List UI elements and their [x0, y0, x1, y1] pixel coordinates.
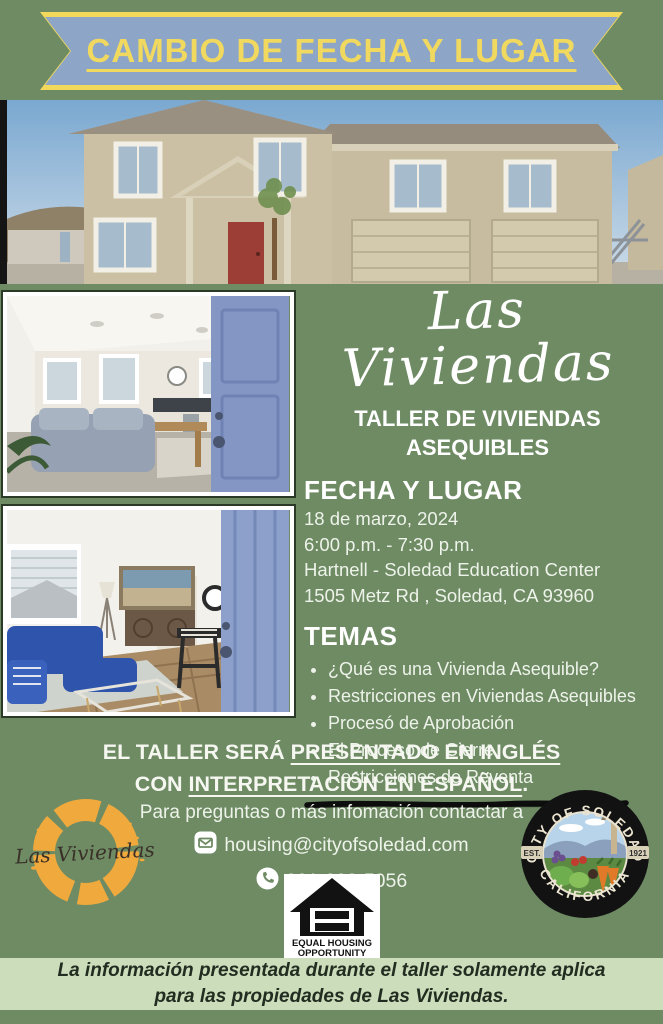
fecha-date: 18 de marzo, 2024 — [304, 506, 651, 532]
temas-item: Restricciones en Viviendas Asequibles — [328, 683, 651, 710]
temas-item: Procesó de Aprobación — [328, 710, 651, 737]
fecha-venue: Hartnell - Soledad Education Center — [304, 557, 651, 583]
equal-housing-logo: EQUAL HOUSING OPPORTUNITY — [282, 874, 382, 965]
seal-est-text: EST. — [524, 849, 541, 858]
living-room-photo-2 — [3, 506, 294, 716]
flyer-poster: CAMBIO DE FECHA Y LUGAR — [0, 0, 663, 1024]
change-banner: CAMBIO DE FECHA Y LUGAR — [40, 12, 623, 90]
brand-script-title: Las Viviendas — [303, 279, 653, 397]
notice-underlined-spanish: INTERPRETACIÓN EN ESPAÑOL — [189, 772, 523, 796]
living-room-photo-1 — [3, 292, 294, 496]
footer-disclaimer-band: La información presentada durante el tal… — [0, 958, 663, 1010]
envelope-icon — [194, 831, 217, 860]
house-exterior-photo — [0, 100, 663, 284]
temas-item: ¿Qué es una Vivienda Asequible? — [328, 656, 651, 683]
temas-heading: TEMAS — [304, 621, 651, 652]
city-of-soledad-seal: CITY OF SOLEDAD CALIFORNIA EST. 1921 — [519, 788, 651, 929]
notice-underlined-english: PRESENTADO EN INGLÉS — [291, 740, 561, 764]
phone-icon — [256, 867, 279, 896]
notice-text: EL TALLER SERÁ — [103, 740, 291, 764]
las-viviendas-logo: Las Viviendas — [10, 790, 160, 920]
contact-email: housing@cityofsoledad.com — [224, 834, 468, 857]
workshop-subtitle: TALLER DE VIVIENDAS ASEQUIBLES — [304, 405, 651, 462]
banner-body: CAMBIO DE FECHA Y LUGAR — [45, 17, 618, 85]
footer-disclaimer-text: La información presentada durante el tal… — [0, 958, 663, 1009]
contact-intro: Para preguntas o más infomación contacta… — [110, 802, 553, 824]
fecha-time: 6:00 p.m. - 7:30 p.m. — [304, 532, 651, 558]
fecha-heading: FECHA Y LUGAR — [304, 475, 651, 506]
contact-email-row: housing@cityofsoledad.com — [110, 831, 553, 860]
seal-year-text: 1921 — [629, 849, 647, 858]
banner-title: CAMBIO DE FECHA Y LUGAR — [87, 32, 577, 70]
fecha-address: 1505 Metz Rd , Soledad, CA 93960 — [304, 583, 651, 609]
